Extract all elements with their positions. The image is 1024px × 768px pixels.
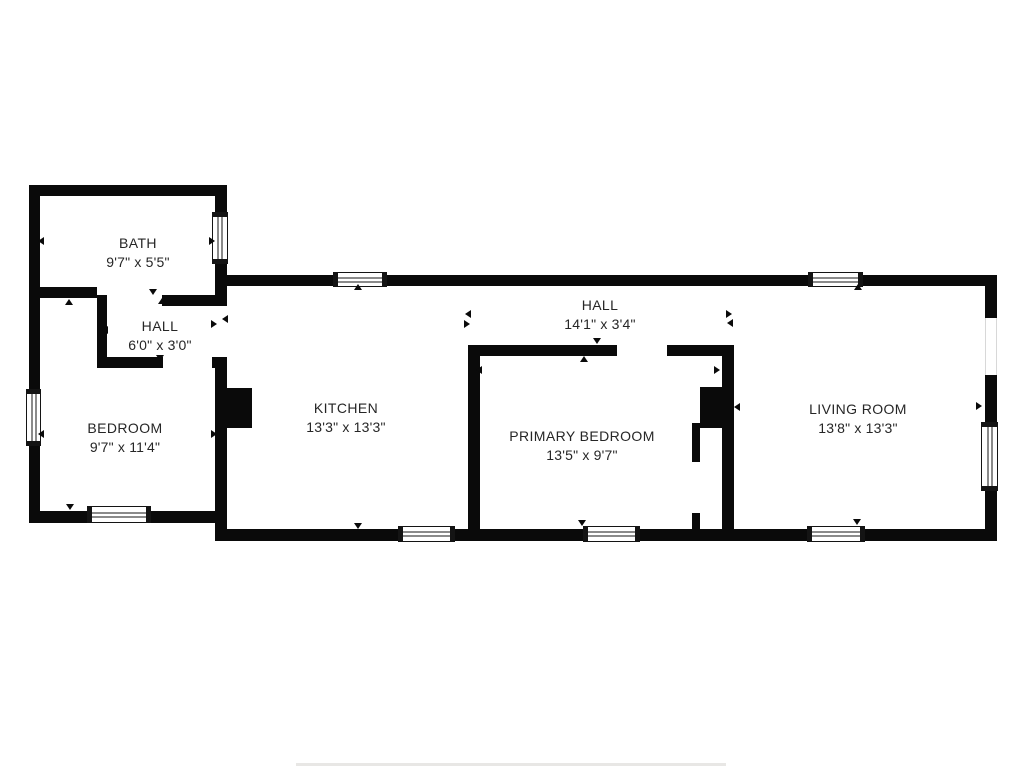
door-opening-icon <box>222 315 228 323</box>
dimension-arrow-icon <box>66 504 74 510</box>
dimension-arrow-icon <box>726 310 732 318</box>
dimension-arrow-icon <box>734 403 740 411</box>
wall <box>468 345 617 356</box>
dimension-arrow-icon <box>465 310 471 318</box>
dimension-arrow-icon <box>38 430 44 438</box>
room-label-primary-bedroom: PRIMARY BEDROOM 13'5" x 9'7" <box>509 427 655 465</box>
wall <box>985 275 997 541</box>
wall <box>97 357 163 368</box>
wall <box>215 357 227 541</box>
cropped-watermark-remnant <box>296 763 726 766</box>
dimension-arrow-icon <box>354 523 362 529</box>
dimension-arrow-icon <box>354 284 362 290</box>
dimension-arrow-icon <box>578 520 586 526</box>
window-symbol <box>807 526 865 542</box>
room-dimensions: 9'7" x 5'5" <box>106 253 169 272</box>
dimension-arrow-icon <box>853 519 861 525</box>
room-label-hall-small: HALL 6'0" x 3'0" <box>128 317 191 355</box>
room-label-bath: BATH 9'7" x 5'5" <box>106 234 169 272</box>
wall <box>692 423 700 462</box>
dimension-arrow-icon <box>714 366 720 374</box>
room-label-bedroom: BEDROOM 9'7" x 11'4" <box>87 419 162 457</box>
window-symbol <box>87 506 151 523</box>
wall <box>29 196 40 523</box>
dimension-arrow-icon <box>476 366 482 374</box>
door-opening-icon <box>158 298 166 304</box>
room-dimensions: 9'7" x 11'4" <box>87 438 162 457</box>
room-dimensions: 6'0" x 3'0" <box>128 336 191 355</box>
floor-plan-canvas: BATH 9'7" x 5'5" HALL 6'0" x 3'0" BEDROO… <box>0 0 1024 768</box>
wall <box>29 185 227 196</box>
dimension-arrow-icon <box>976 402 982 410</box>
dimension-arrow-icon <box>209 237 215 245</box>
wall-closet-block <box>217 388 252 428</box>
window-symbol <box>583 526 640 542</box>
dimension-arrow-icon <box>38 237 44 245</box>
wall-closet-block <box>700 387 734 428</box>
dimension-arrow-icon <box>65 299 73 305</box>
room-name: KITCHEN <box>306 399 385 418</box>
dimension-arrow-icon <box>593 338 601 344</box>
room-name: BATH <box>106 234 169 253</box>
room-dimensions: 13'3" x 13'3" <box>306 418 385 437</box>
room-label-living-room: LIVING ROOM 13'8" x 13'3" <box>809 400 907 438</box>
door-opening-icon <box>211 320 217 328</box>
wall <box>162 295 215 306</box>
dimension-arrow-icon <box>102 326 108 334</box>
room-name: HALL <box>564 296 635 315</box>
window-symbol <box>981 422 998 491</box>
room-name: HALL <box>128 317 191 336</box>
door-opening-icon <box>149 289 157 295</box>
room-name: PRIMARY BEDROOM <box>509 427 655 446</box>
dimension-arrow-icon <box>464 320 470 328</box>
window-symbol <box>398 526 455 542</box>
wall <box>29 287 97 298</box>
dimension-arrow-icon <box>211 430 217 438</box>
room-dimensions: 13'8" x 13'3" <box>809 419 907 438</box>
wall-opening <box>985 318 997 375</box>
wall <box>692 513 700 541</box>
door-opening-icon <box>580 356 588 362</box>
wall <box>468 345 480 541</box>
door-opening-icon <box>156 355 164 361</box>
room-label-kitchen: KITCHEN 13'3" x 13'3" <box>306 399 385 437</box>
dimension-arrow-icon <box>727 319 733 327</box>
wall <box>722 345 734 541</box>
dimension-arrow-icon <box>854 284 862 290</box>
room-dimensions: 13'5" x 9'7" <box>509 446 655 465</box>
room-dimensions: 14'1" x 3'4" <box>564 315 635 334</box>
room-label-hall-main: HALL 14'1" x 3'4" <box>564 296 635 334</box>
room-name: LIVING ROOM <box>809 400 907 419</box>
dimension-arrow-icon <box>156 190 164 196</box>
room-name: BEDROOM <box>87 419 162 438</box>
